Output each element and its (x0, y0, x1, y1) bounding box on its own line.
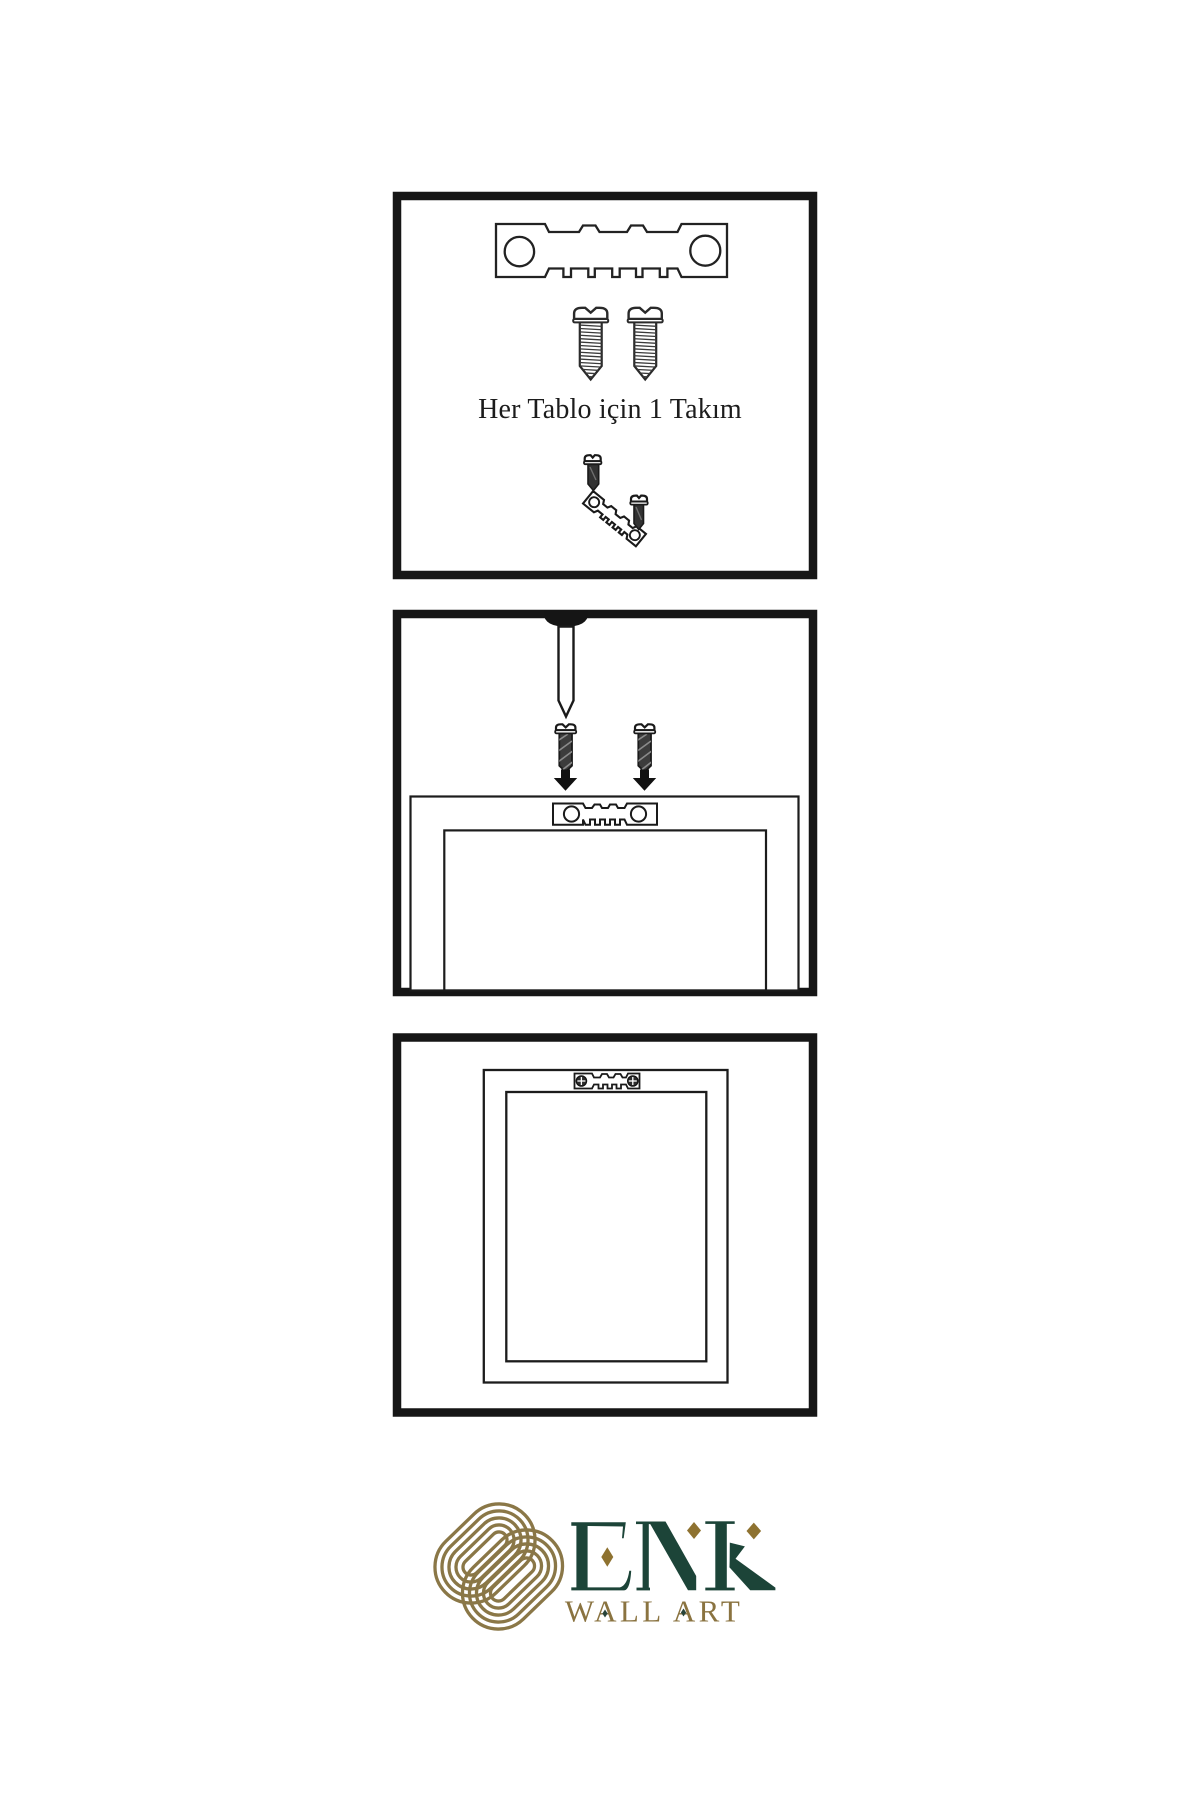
svg-text:WALL ART: WALL ART (565, 1594, 743, 1629)
svg-text:Her Tablo için 1 Takım: Her Tablo için 1 Takım (478, 394, 742, 425)
